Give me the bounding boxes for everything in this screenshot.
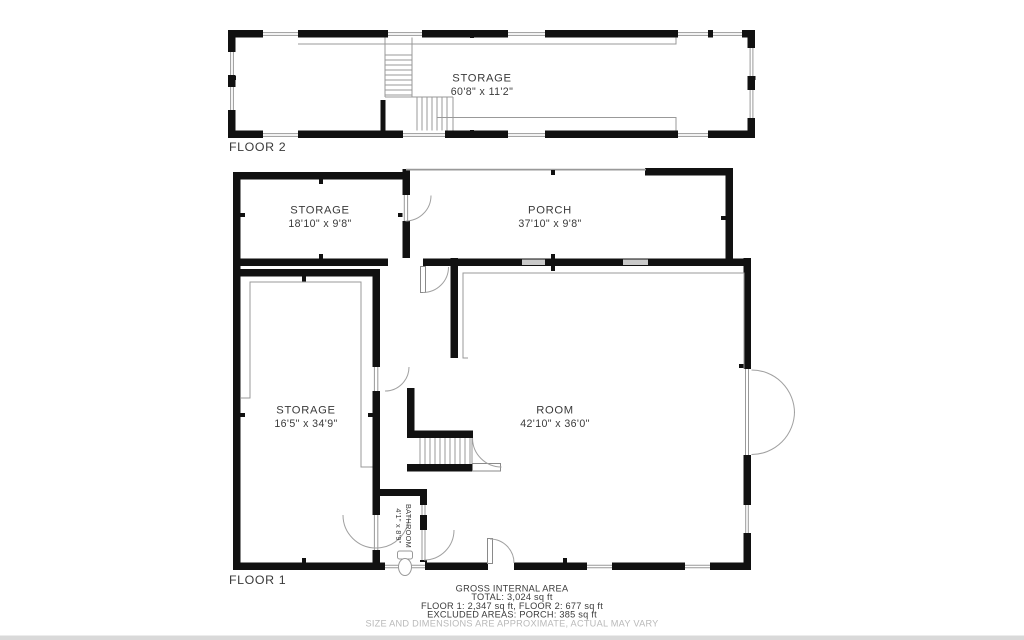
door-bathroom bbox=[420, 530, 454, 560]
bathroom-name: BATHROOM bbox=[404, 504, 413, 548]
door-leaf bbox=[473, 464, 501, 472]
window bbox=[587, 562, 612, 571]
storage-top-name: STORAGE bbox=[290, 205, 349, 217]
stairs-outline bbox=[385, 38, 453, 131]
window bbox=[420, 505, 428, 515]
window bbox=[522, 260, 545, 266]
stairs-treads bbox=[420, 438, 472, 464]
door-arc bbox=[752, 370, 795, 413]
door-arc bbox=[752, 412, 795, 455]
window bbox=[685, 562, 710, 571]
stairs-treads bbox=[385, 55, 447, 131]
bottom-edge-strip bbox=[0, 636, 1024, 640]
stairs-wall-stub bbox=[381, 100, 386, 131]
floor-plan-page: STORAGE 60'8" x 11'2" FLOOR 2 bbox=[0, 0, 1024, 640]
storage-main-dims: 16'5" x 34'9" bbox=[274, 418, 337, 430]
storage-top-dims: 18'10" x 9'8" bbox=[288, 218, 351, 230]
door-leaf bbox=[488, 539, 493, 564]
bathroom-label: BATHROOM 4'1" x 8'9" bbox=[394, 504, 413, 548]
window bbox=[743, 505, 752, 533]
room-name: ROOM bbox=[536, 405, 574, 417]
floor1-label: FLOOR 1 bbox=[229, 573, 286, 587]
toilet bbox=[398, 551, 413, 576]
door-storage-hall bbox=[372, 367, 409, 391]
room-dims: 42'10" x 36'0" bbox=[520, 418, 590, 430]
door-storage-top-porch bbox=[402, 195, 431, 221]
door-arc bbox=[424, 530, 454, 560]
window bbox=[623, 260, 648, 266]
door-leaf bbox=[421, 267, 426, 293]
door-arc bbox=[423, 267, 449, 293]
floor1-staircase bbox=[420, 438, 472, 464]
floor1-plan: STORAGE 18'10" x 9'8" PORCH 37'10" x 9'8… bbox=[229, 168, 795, 587]
storage-main-name: STORAGE bbox=[276, 405, 335, 417]
door-arc bbox=[472, 438, 501, 467]
door-stairs bbox=[472, 438, 501, 471]
storage-main-inner-outline bbox=[241, 282, 373, 467]
footer-disclaimer: SIZE AND DIMENSIONS ARE APPROXIMATE, ACT… bbox=[365, 618, 658, 628]
porch-name: PORCH bbox=[528, 205, 572, 217]
floor2-staircase bbox=[381, 38, 454, 131]
door-double-exterior bbox=[743, 369, 795, 455]
floor2-storage-name: STORAGE bbox=[452, 73, 511, 85]
floor2-storage-dims: 60'8" x 11'2" bbox=[451, 86, 514, 98]
floor2-label: FLOOR 2 bbox=[229, 140, 286, 154]
door-arc bbox=[490, 539, 514, 563]
room-inner-outline bbox=[463, 273, 744, 369]
floor2-plan: STORAGE 60'8" x 11'2" FLOOR 2 bbox=[228, 30, 756, 155]
bathroom-dims: 4'1" x 8'9" bbox=[394, 508, 403, 543]
footer: GROSS INTERNAL AREA TOTAL: 3,024 sq ft F… bbox=[365, 584, 658, 629]
door-arc bbox=[385, 367, 409, 391]
door-arc bbox=[343, 515, 376, 548]
door-exterior-bottom bbox=[488, 539, 515, 571]
porch-dims: 37'10" x 9'8" bbox=[518, 218, 581, 230]
floor-plan-canvas: STORAGE 60'8" x 11'2" FLOOR 2 bbox=[0, 0, 1024, 640]
floor2-room-label: STORAGE 60'8" x 11'2" bbox=[451, 73, 514, 99]
